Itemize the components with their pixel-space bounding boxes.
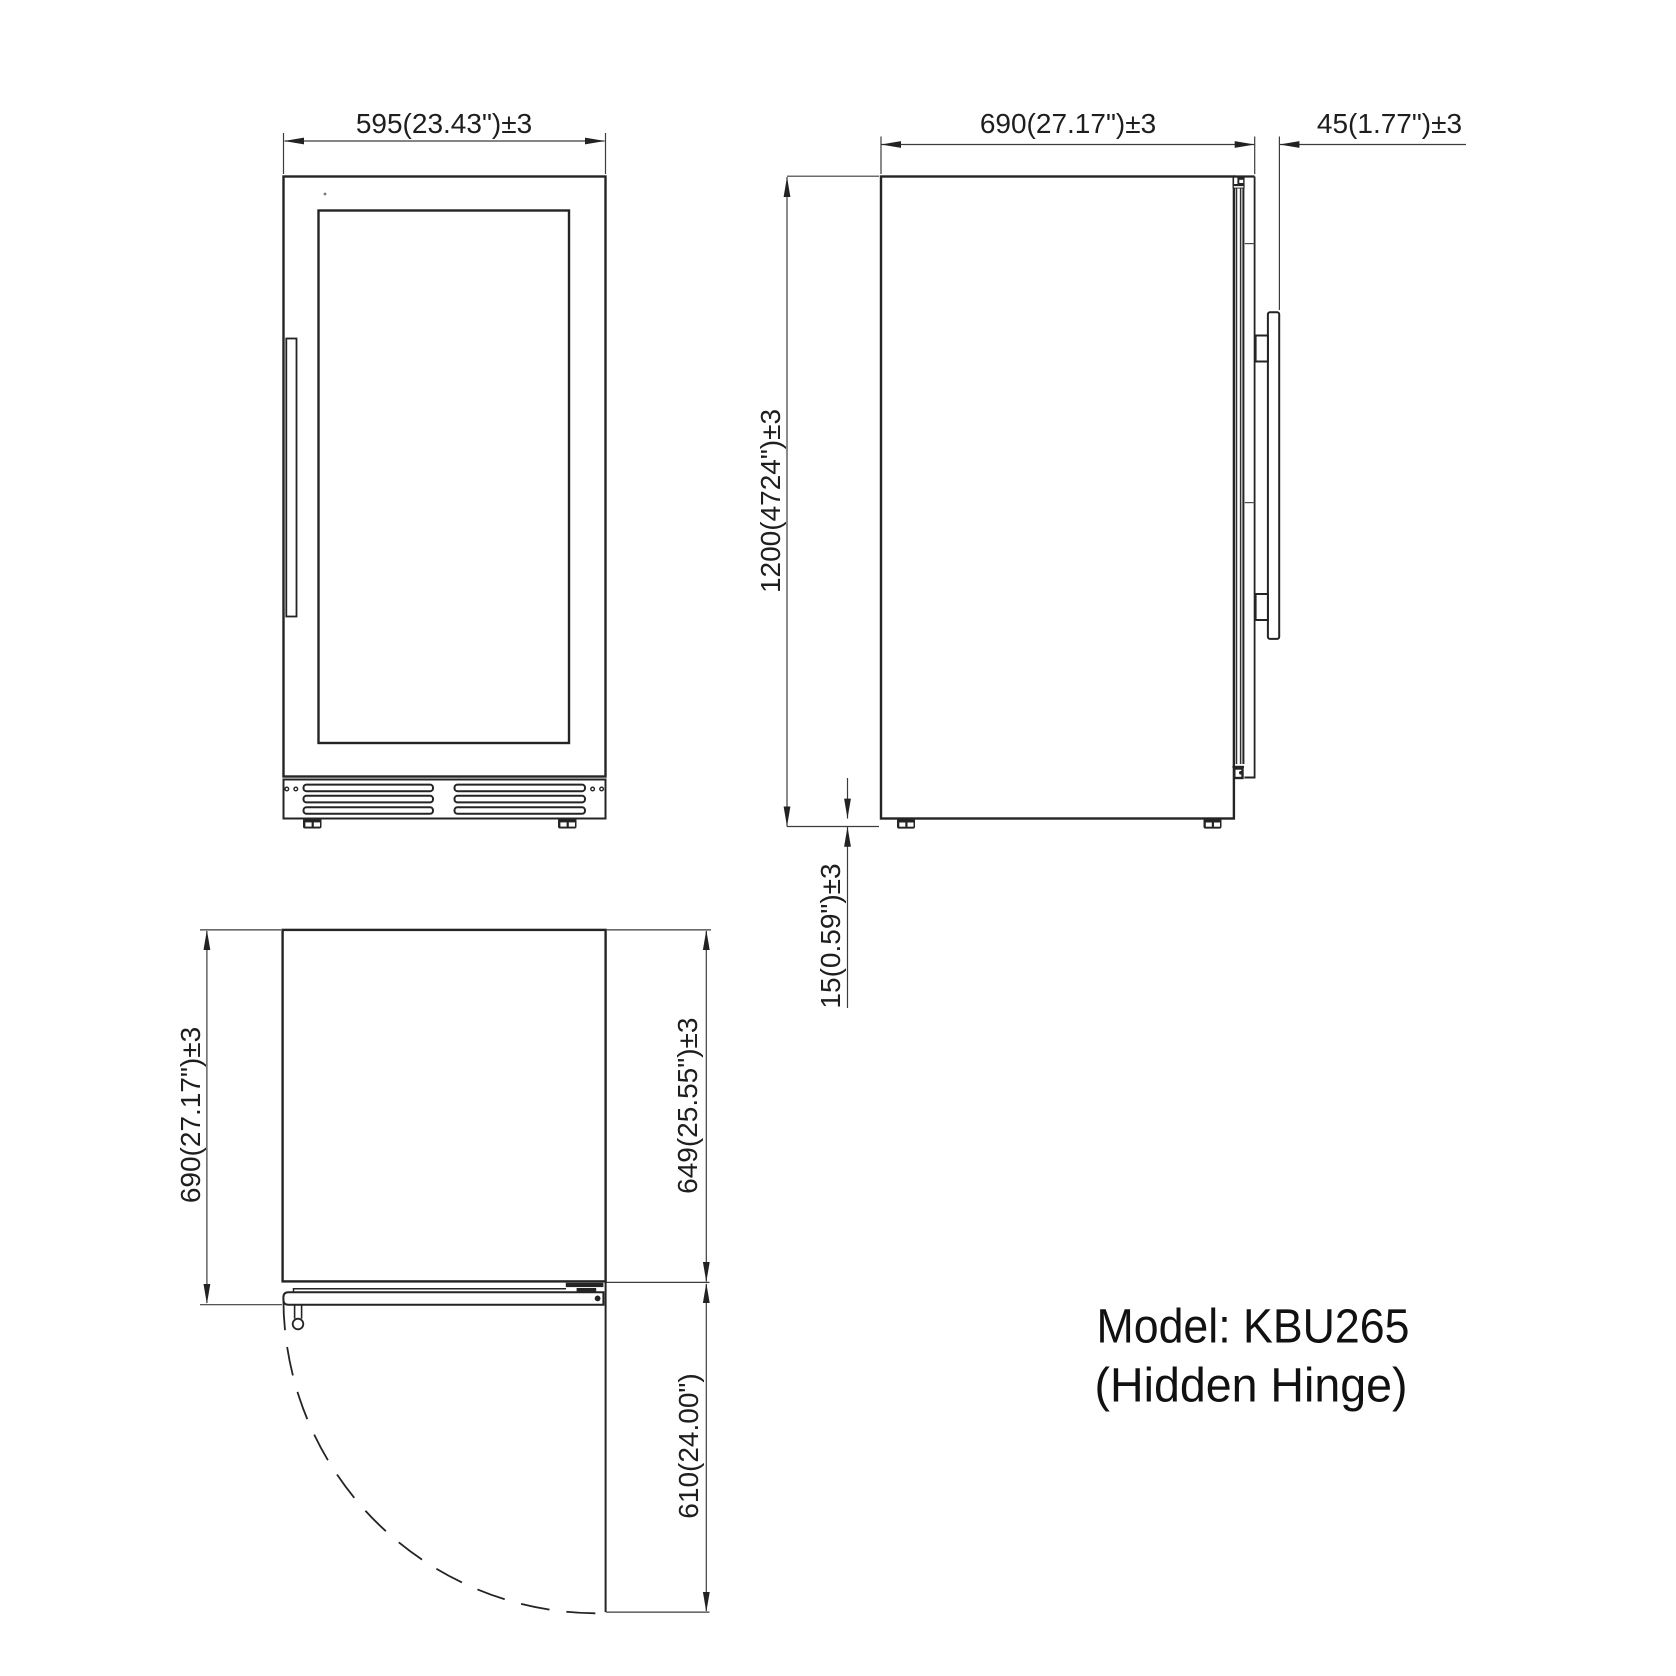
svg-text:45(1.77")±3: 45(1.77")±3 <box>1317 108 1462 139</box>
svg-text:649(25.55")±3: 649(25.55")±3 <box>672 1018 703 1194</box>
svg-text:(Hidden Hinge): (Hidden Hinge) <box>1095 1359 1408 1413</box>
svg-text:Model: KBU265: Model: KBU265 <box>1097 1300 1410 1354</box>
svg-text:595(23.43")±3: 595(23.43")±3 <box>356 108 532 139</box>
svg-text:610(24.00"): 610(24.00") <box>673 1373 704 1518</box>
svg-text:690(27.17")±3: 690(27.17")±3 <box>175 1027 206 1203</box>
svg-text:690(27.17")±3: 690(27.17")±3 <box>980 108 1156 139</box>
svg-text:1200(4724")±3: 1200(4724")±3 <box>755 409 786 593</box>
svg-text:15(0.59")±3: 15(0.59")±3 <box>815 863 846 1008</box>
